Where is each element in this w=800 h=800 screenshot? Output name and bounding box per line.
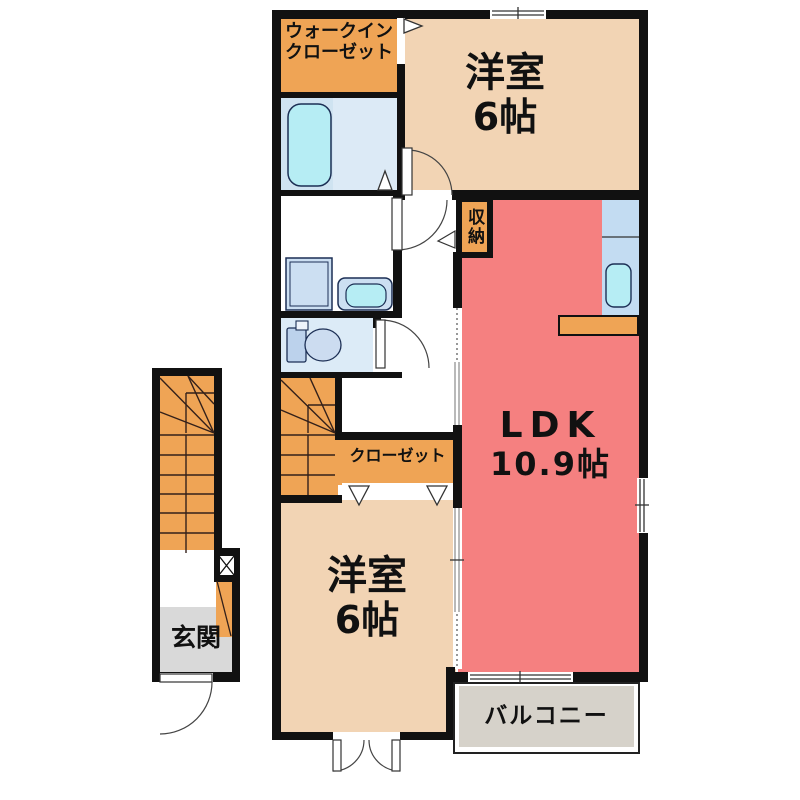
opening-hall-ldk <box>453 306 462 427</box>
wall <box>272 495 342 503</box>
wall <box>272 190 393 196</box>
window-leaf <box>392 740 400 771</box>
window-bottom-opening <box>333 732 400 740</box>
floor-plan: 収納 バルコニー <box>0 0 800 800</box>
room-washroom <box>277 193 397 315</box>
balcony-label: バルコニー <box>484 703 609 729</box>
wall <box>639 10 648 682</box>
kitchen-unit <box>602 200 639 317</box>
wic-label: ウォークイン クローゼット <box>282 22 396 63</box>
balcony: バルコニー <box>453 682 640 754</box>
genkan-label: 玄関 <box>158 624 234 653</box>
window-right <box>637 478 648 533</box>
corridor-beside-toilet <box>373 315 458 375</box>
wall <box>272 92 405 98</box>
room-bathroom-tub-area <box>277 95 333 193</box>
wall <box>373 318 381 328</box>
bedroom-bottom-label: 洋室 6帖 <box>281 553 453 643</box>
wall <box>335 432 462 440</box>
wall <box>272 10 648 19</box>
window-leaf <box>333 740 341 771</box>
wall <box>152 368 222 376</box>
wic-door-opening <box>397 18 405 64</box>
room-bathroom <box>333 95 400 193</box>
closet-label: クローゼット <box>342 447 453 465</box>
wall <box>335 378 342 440</box>
window-top <box>490 8 546 19</box>
wall <box>272 311 402 318</box>
corridor-above-closet <box>338 375 456 435</box>
entrance-door-opening <box>160 673 213 682</box>
stairs-main <box>277 375 338 499</box>
kitchen-counter <box>558 315 639 336</box>
window-balcony-slider <box>468 672 573 682</box>
opening-bedroom-ldk <box>453 506 462 669</box>
room-toilet <box>277 315 377 375</box>
wall <box>393 196 402 317</box>
ldk-label: LDK 10.9帖 <box>462 405 639 483</box>
stairs-annex <box>156 372 216 555</box>
wall <box>453 252 462 308</box>
meter-box <box>218 554 236 577</box>
wall <box>453 425 462 508</box>
storage-box: 収納 <box>456 196 493 258</box>
bedroom-top-door-opening <box>405 190 452 200</box>
storage-label: 収納 <box>462 208 487 246</box>
wall <box>214 368 222 554</box>
bedroom-top-label: 洋室 6帖 <box>405 50 605 140</box>
